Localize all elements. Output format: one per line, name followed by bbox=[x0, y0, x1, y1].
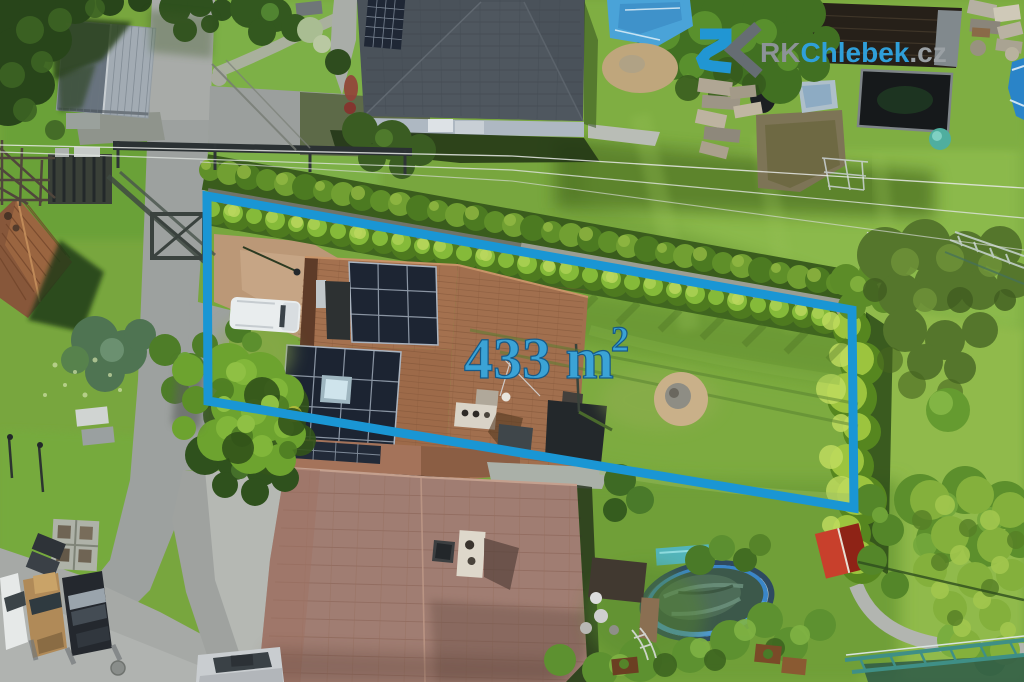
svg-text:2: 2 bbox=[611, 319, 629, 359]
svg-text:433 m: 433 m bbox=[464, 326, 614, 391]
svg-text:RKChlebek.cz: RKChlebek.cz bbox=[760, 37, 947, 68]
